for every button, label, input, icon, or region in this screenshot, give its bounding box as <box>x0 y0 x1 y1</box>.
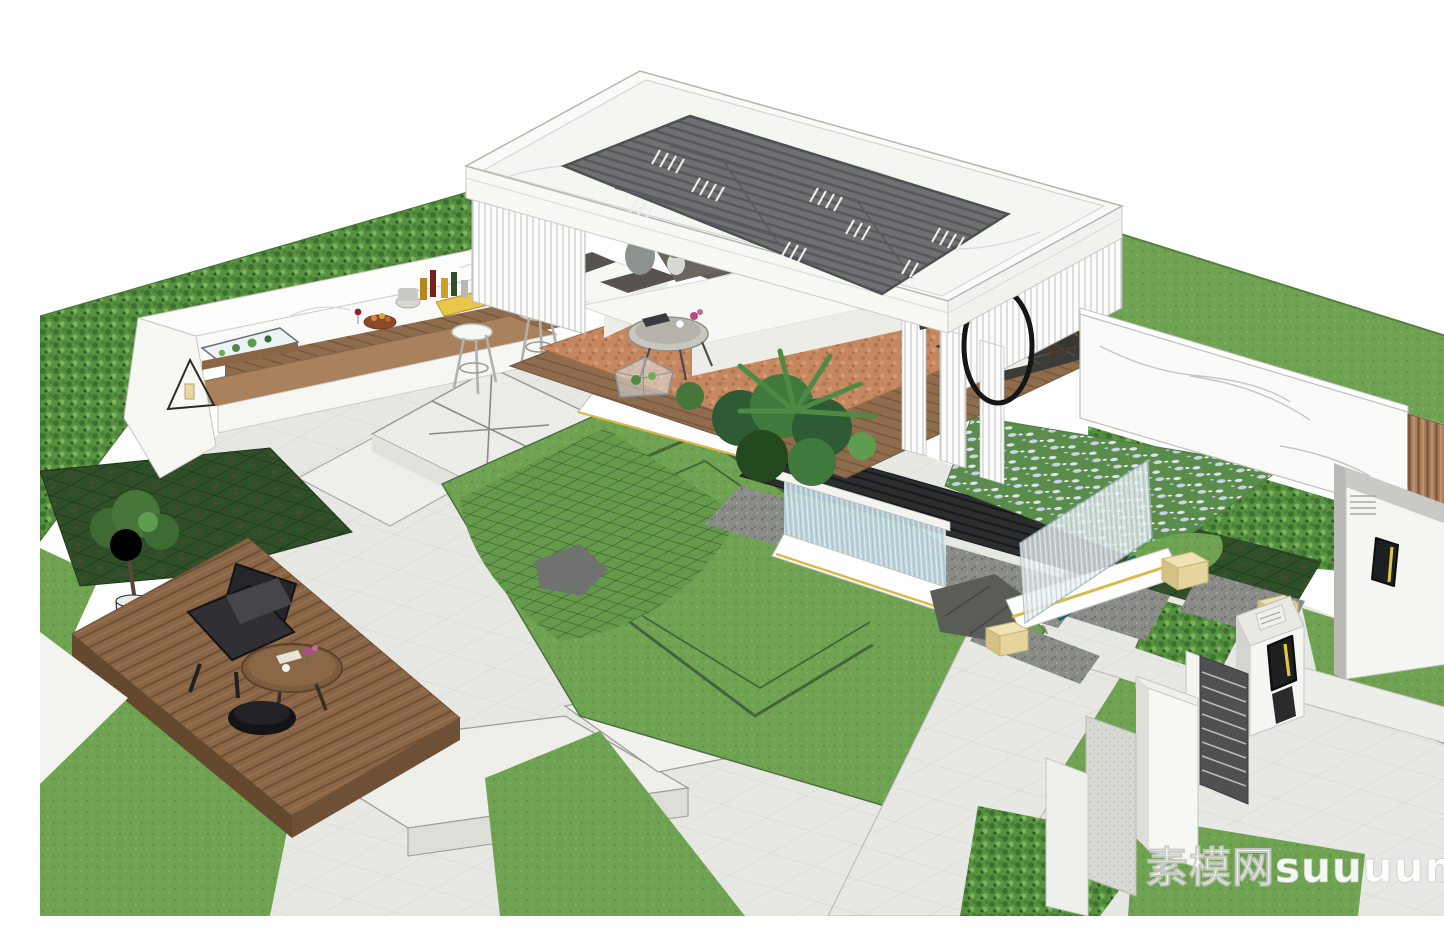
pouf <box>228 701 296 735</box>
render-canvas: 素模网suuuum.com <box>40 16 1444 916</box>
watermark-text: 素模网suuuum.com <box>1146 843 1444 892</box>
wall-sconce <box>1372 538 1398 586</box>
garden-3d-render: 素模网suuuum.com <box>40 16 1444 916</box>
